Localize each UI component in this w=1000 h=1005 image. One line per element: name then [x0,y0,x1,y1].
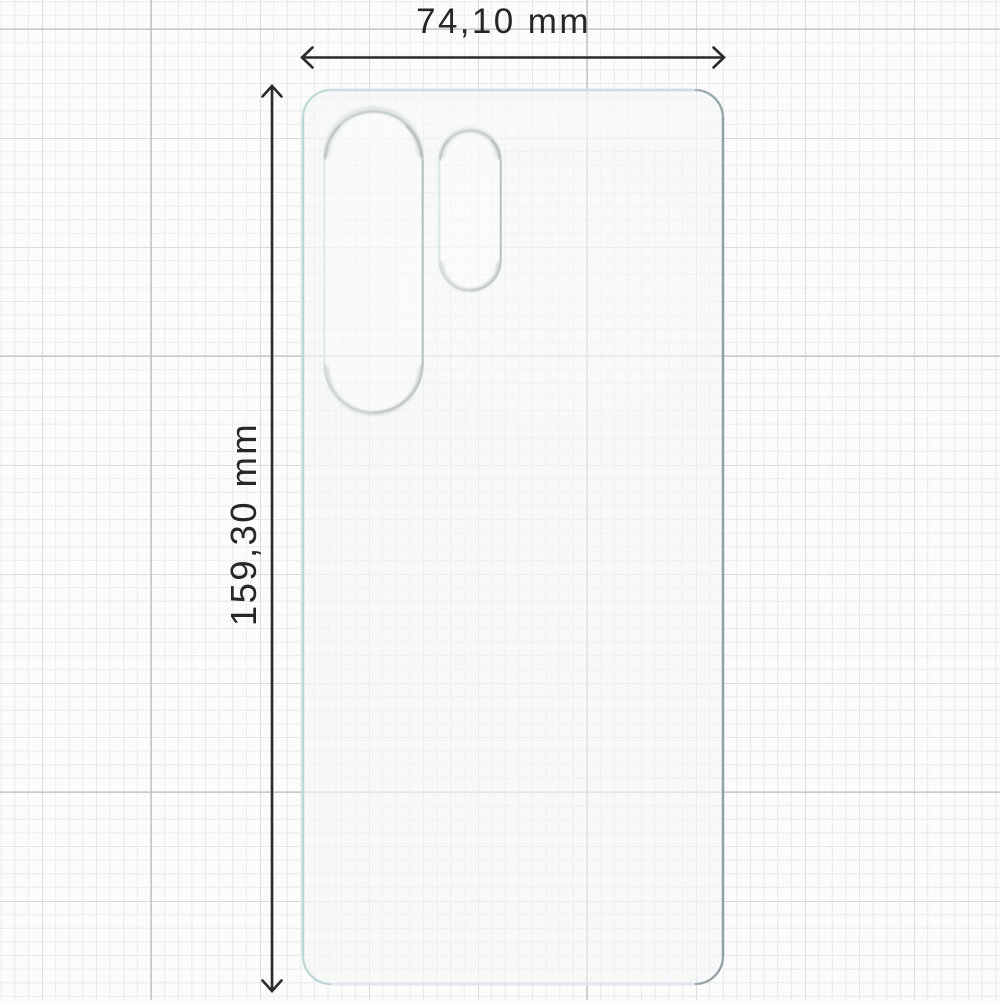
svg-text:159,30 mm: 159,30 mm [223,422,264,626]
svg-text:74,10 mm: 74,10 mm [416,2,591,41]
